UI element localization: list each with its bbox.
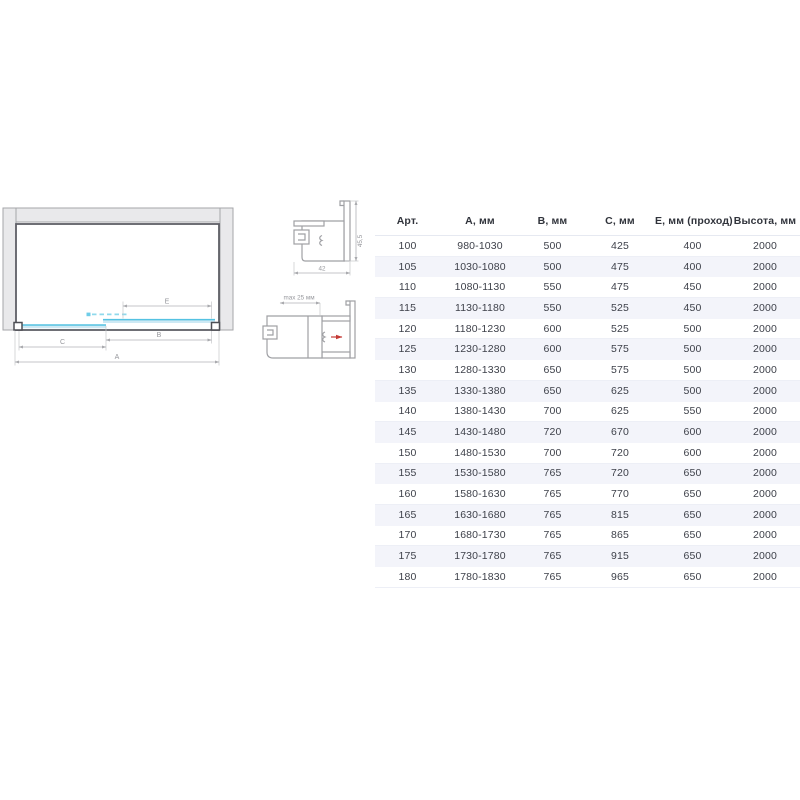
table-cell: 135 (375, 385, 440, 397)
wall-bracket-left (14, 323, 22, 331)
column-header: Е, мм (проход) (655, 215, 730, 227)
door-open-mark (87, 313, 91, 317)
table-row: 1251230-12806005755002000 (375, 339, 800, 360)
table-cell: 115 (375, 302, 440, 314)
table-cell: 180 (375, 571, 440, 583)
column-header: Арт. (375, 215, 440, 227)
table-cell: 2000 (730, 509, 800, 521)
profile-flange (350, 301, 355, 358)
table-cell: 145 (375, 426, 440, 438)
profile-top-bar (294, 221, 324, 226)
table-row: 1751730-17807659156502000 (375, 546, 800, 567)
table-cell: 130 (375, 364, 440, 376)
column-header: В, мм (520, 215, 585, 227)
table-cell: 425 (585, 240, 655, 252)
table-cell: 475 (585, 261, 655, 273)
table-cell: 700 (520, 405, 585, 417)
table-cell: 2000 (730, 323, 800, 335)
wall-bracket-right (212, 323, 220, 331)
table-cell: 1530-1580 (440, 467, 520, 479)
table-header-row: Арт.А, ммВ, ммС, ммЕ, мм (проход)Высота,… (375, 206, 800, 236)
table-cell: 1580-1630 (440, 488, 520, 500)
table-row: 1301280-13306505755002000 (375, 360, 800, 381)
dimension-e-label: E (165, 299, 170, 306)
table-cell: 765 (520, 529, 585, 541)
plan-diagram: E B C A (0, 195, 250, 380)
table-cell: 765 (520, 488, 585, 500)
dimension-b-label: B (157, 332, 162, 339)
table-cell: 2000 (730, 571, 800, 583)
table-cell: 105 (375, 261, 440, 273)
table-row: 1801780-18307659656502000 (375, 567, 800, 588)
table-cell: 765 (520, 571, 585, 583)
table-cell: 865 (585, 529, 655, 541)
table-cell: 475 (585, 281, 655, 293)
table-cell: 2000 (730, 343, 800, 355)
table-cell: 650 (655, 467, 730, 479)
profile-flange-hook (346, 301, 350, 305)
table-cell: 575 (585, 343, 655, 355)
table-cell: 720 (585, 467, 655, 479)
table-cell: 600 (655, 447, 730, 459)
table-row: 1551530-15807657206502000 (375, 464, 800, 485)
table-cell: 765 (520, 467, 585, 479)
table-cell: 125 (375, 343, 440, 355)
table-cell: 770 (585, 488, 655, 500)
table-row: 1651630-16807658156502000 (375, 505, 800, 526)
table-cell: 170 (375, 529, 440, 541)
profile-flange (344, 201, 350, 261)
table-cell: 720 (585, 447, 655, 459)
profile-open-diagram: max 25 мм (252, 290, 367, 370)
table-cell: 575 (585, 364, 655, 376)
table-cell: 500 (520, 240, 585, 252)
table-row: 100980-10305004254002000 (375, 236, 800, 257)
table-cell: 625 (585, 405, 655, 417)
table-cell: 2000 (730, 426, 800, 438)
wall-left (3, 208, 16, 330)
table-cell: 2000 (730, 240, 800, 252)
table-cell: 1630-1680 (440, 509, 520, 521)
table-cell: 175 (375, 550, 440, 562)
table-cell: 2000 (730, 364, 800, 376)
table-cell: 400 (655, 261, 730, 273)
table-row: 1351330-13806506255002000 (375, 381, 800, 402)
table-cell: 110 (375, 281, 440, 293)
dimension-c-label: C (60, 339, 65, 346)
table-cell: 500 (655, 364, 730, 376)
table-row: 1101080-11305504754502000 (375, 277, 800, 298)
profile-notch (263, 326, 277, 339)
table-cell: 1180-1230 (440, 323, 520, 335)
table-cell: 1330-1380 (440, 385, 520, 397)
table-cell: 450 (655, 302, 730, 314)
table-cell: 1480-1530 (440, 447, 520, 459)
table-row: 1051030-10805004754002000 (375, 257, 800, 278)
table-cell: 2000 (730, 385, 800, 397)
table-row: 1451430-14807206706002000 (375, 422, 800, 443)
wall-right (220, 208, 233, 330)
table-cell: 625 (585, 385, 655, 397)
table-cell: 765 (520, 509, 585, 521)
table-cell: 400 (655, 240, 730, 252)
table-cell: 650 (520, 364, 585, 376)
table-cell: 1430-1480 (440, 426, 520, 438)
table-cell: 500 (655, 385, 730, 397)
column-header: Высота, мм (730, 215, 800, 227)
table-cell: 1380-1430 (440, 405, 520, 417)
profile-notch (294, 230, 309, 244)
profile-top-rail (322, 316, 350, 321)
table-cell: 550 (520, 302, 585, 314)
profile-flange-hook (340, 201, 344, 206)
table-cell: 600 (655, 426, 730, 438)
table-cell: 650 (655, 550, 730, 562)
table-cell: 525 (585, 323, 655, 335)
table-cell: 2000 (730, 302, 800, 314)
table-cell: 2000 (730, 467, 800, 479)
column-header: С, мм (585, 215, 655, 227)
table-cell: 670 (585, 426, 655, 438)
table-cell: 2000 (730, 488, 800, 500)
table-cell: 2000 (730, 405, 800, 417)
table-cell: 650 (520, 385, 585, 397)
table-cell: 765 (520, 550, 585, 562)
table-cell: 2000 (730, 529, 800, 541)
profile-clip (323, 332, 325, 342)
table-cell: 1680-1730 (440, 529, 520, 541)
table-cell: 165 (375, 509, 440, 521)
table-cell: 965 (585, 571, 655, 583)
column-header: А, мм (440, 215, 520, 227)
table-cell: 1030-1080 (440, 261, 520, 273)
table-cell: 100 (375, 240, 440, 252)
table-cell: 650 (655, 571, 730, 583)
table-row: 1501480-15307007206002000 (375, 443, 800, 464)
table-cell: 140 (375, 405, 440, 417)
table-row: 1701680-17307658656502000 (375, 526, 800, 547)
table-cell: 650 (655, 509, 730, 521)
wall-top (3, 208, 233, 222)
table-cell: 1730-1780 (440, 550, 520, 562)
table-cell: 700 (520, 447, 585, 459)
table-cell: 500 (520, 261, 585, 273)
table-cell: 120 (375, 323, 440, 335)
table-cell: 2000 (730, 281, 800, 293)
table-cell: 600 (520, 343, 585, 355)
table-row: 1151130-11805505254502000 (375, 298, 800, 319)
table-row: 1601580-16307657706502000 (375, 484, 800, 505)
table-cell: 550 (520, 281, 585, 293)
table-cell: 500 (655, 343, 730, 355)
table-cell: 720 (520, 426, 585, 438)
table-body: 100980-103050042540020001051030-10805004… (375, 236, 800, 588)
table-cell: 915 (585, 550, 655, 562)
table-row: 1401380-14307006255502000 (375, 402, 800, 423)
table-cell: 650 (655, 488, 730, 500)
table-cell: 2000 (730, 261, 800, 273)
table-cell: 600 (520, 323, 585, 335)
dimension-a-label: A (115, 354, 120, 361)
table-cell: 1230-1280 (440, 343, 520, 355)
table-row: 1201180-12306005255002000 (375, 319, 800, 340)
table-cell: 1780-1830 (440, 571, 520, 583)
profile-bottom-rail (322, 352, 350, 358)
dimension-width-label: 42 (318, 266, 326, 273)
table-cell: 525 (585, 302, 655, 314)
table-cell: 550 (655, 405, 730, 417)
table-cell: 1080-1130 (440, 281, 520, 293)
profile-closed-diagram: 45,5 42 (280, 195, 385, 285)
table-cell: 815 (585, 509, 655, 521)
dimension-max-label: max 25 мм (283, 295, 314, 302)
table-cell: 160 (375, 488, 440, 500)
table-cell: 2000 (730, 550, 800, 562)
size-table: Арт.А, ммВ, ммС, ммЕ, мм (проход)Высота,… (375, 206, 800, 588)
table-cell: 2000 (730, 447, 800, 459)
dimension-height-label: 45,5 (357, 234, 364, 247)
table-cell: 1130-1180 (440, 302, 520, 314)
table-cell: 150 (375, 447, 440, 459)
table-cell: 650 (655, 529, 730, 541)
table-cell: 450 (655, 281, 730, 293)
table-cell: 980-1030 (440, 240, 520, 252)
table-cell: 1280-1330 (440, 364, 520, 376)
table-cell: 155 (375, 467, 440, 479)
spec-sheet: E B C A 45,5 (0, 0, 800, 800)
table-cell: 500 (655, 323, 730, 335)
